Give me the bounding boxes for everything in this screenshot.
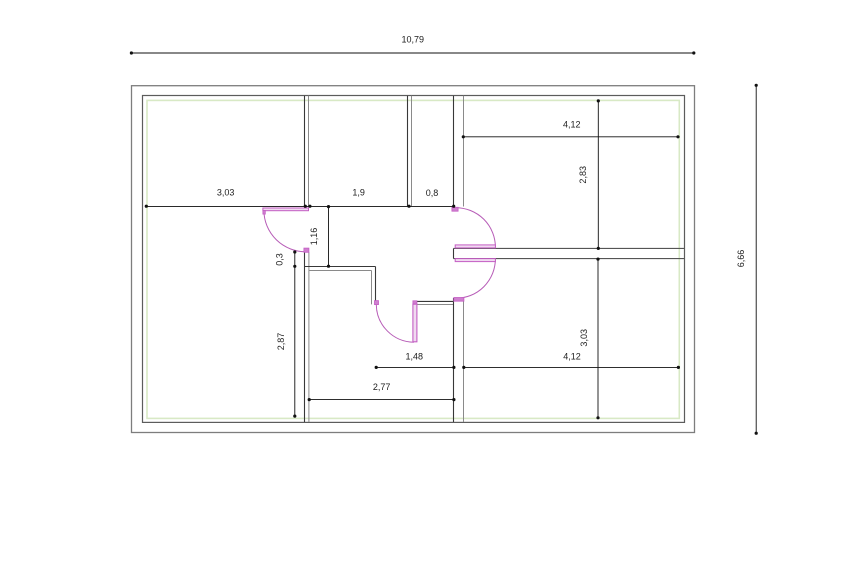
svg-text:4,12: 4,12 <box>563 119 581 129</box>
svg-text:3,03: 3,03 <box>579 329 589 347</box>
svg-text:0,8: 0,8 <box>426 188 439 198</box>
svg-text:3,03: 3,03 <box>217 188 235 198</box>
svg-text:6,66: 6,66 <box>736 250 746 268</box>
svg-text:0,3: 0,3 <box>274 253 284 266</box>
svg-text:10,79: 10,79 <box>402 34 425 44</box>
svg-text:2,83: 2,83 <box>578 166 588 184</box>
svg-text:4,12: 4,12 <box>563 352 581 362</box>
svg-text:2,77: 2,77 <box>373 382 391 392</box>
svg-text:1,9: 1,9 <box>352 188 365 198</box>
svg-text:1,16: 1,16 <box>309 228 319 246</box>
svg-text:1,48: 1,48 <box>406 352 424 362</box>
svg-text:2,87: 2,87 <box>276 333 286 351</box>
